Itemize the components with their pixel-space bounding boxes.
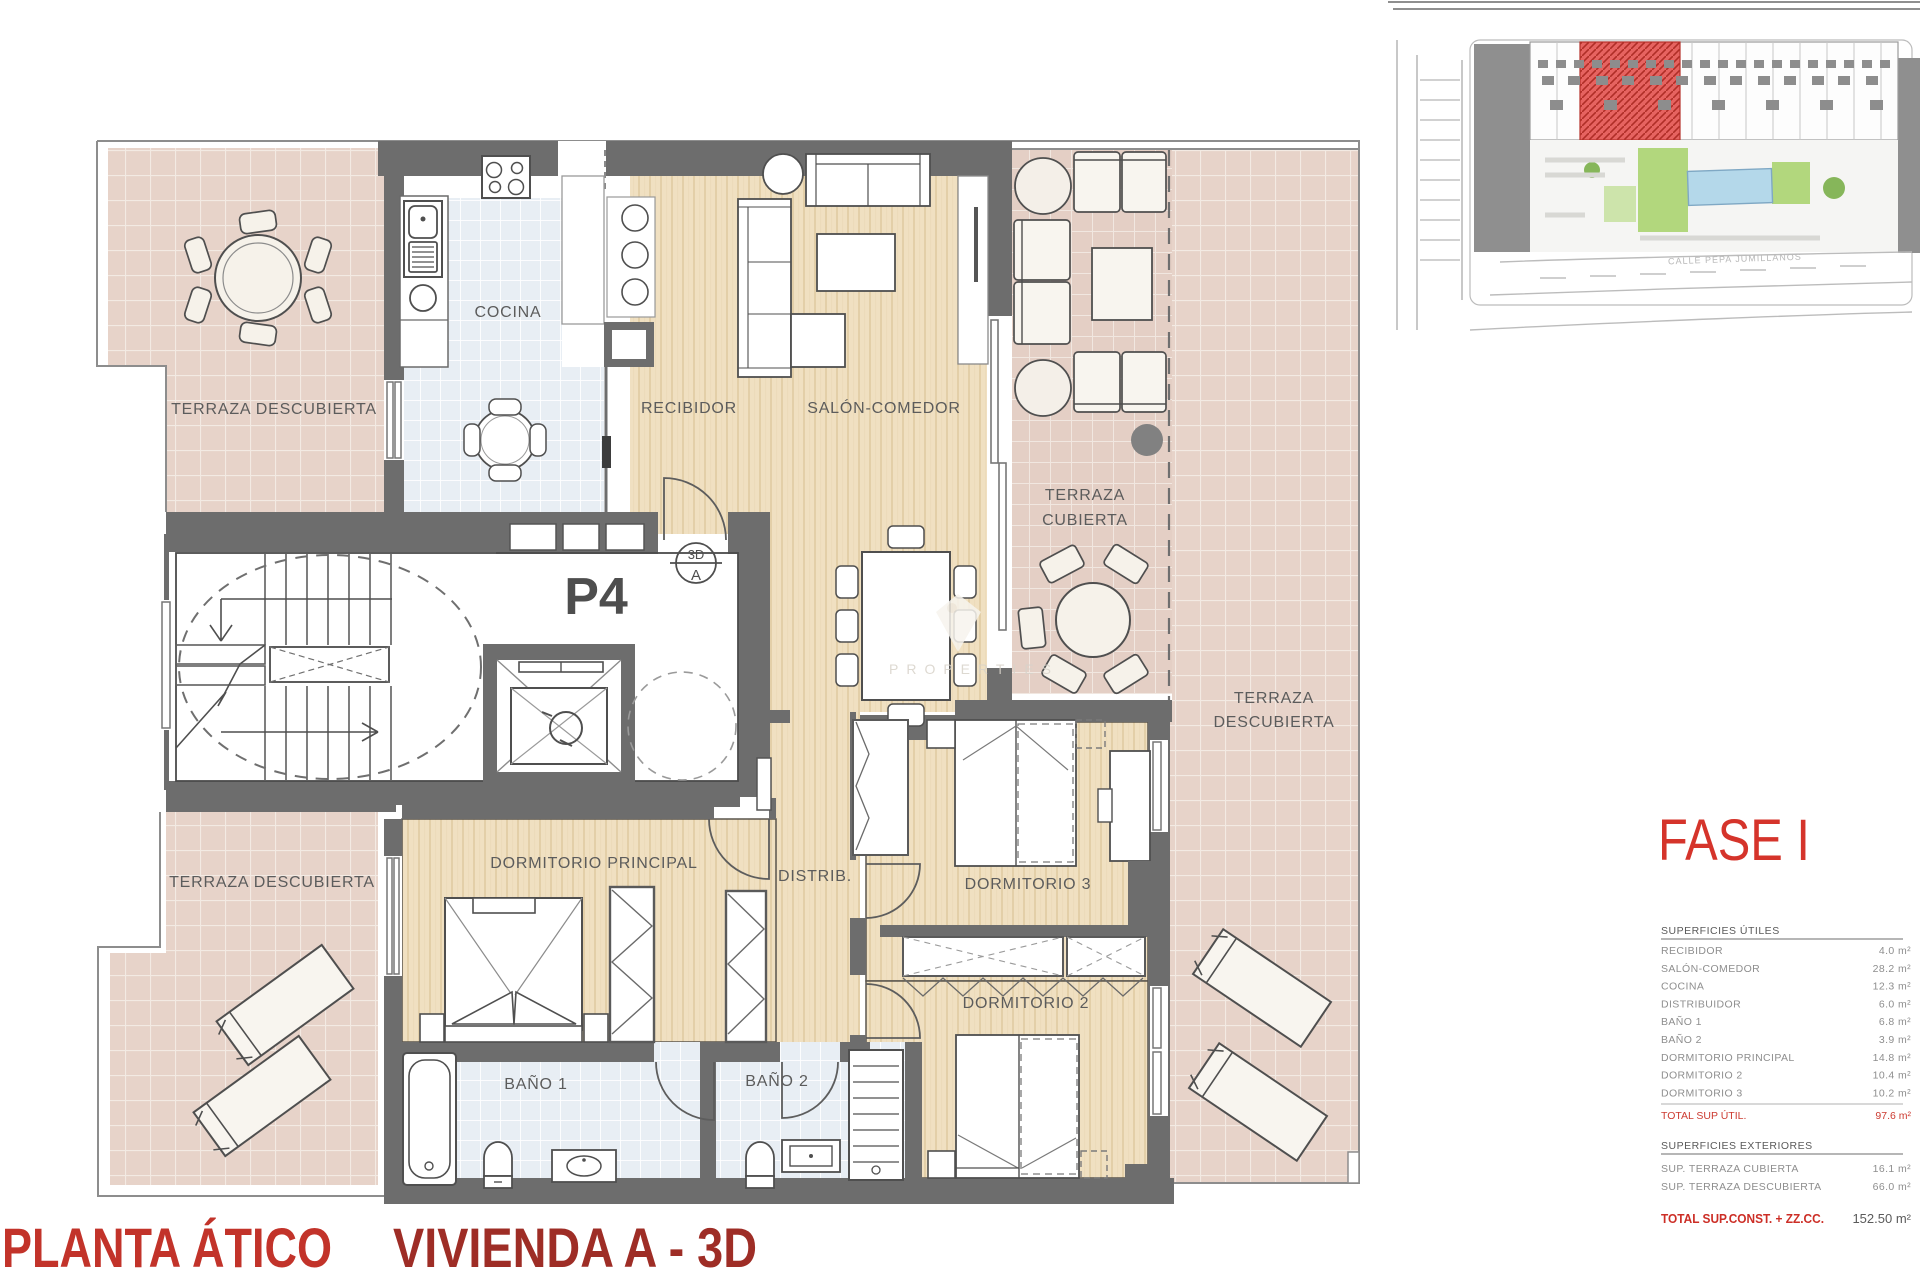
svg-text:COCINA: COCINA <box>1661 981 1704 993</box>
svg-text:3D: 3D <box>688 547 705 562</box>
svg-text:SALÓN-COMEDOR: SALÓN-COMEDOR <box>1661 962 1760 975</box>
svg-text:TOTAL SUP.CONST. + ZZ.CC.: TOTAL SUP.CONST. + ZZ.CC. <box>1661 1211 1824 1226</box>
svg-text:A: A <box>691 567 701 584</box>
svg-text:COCINA: COCINA <box>474 304 541 321</box>
svg-text:SUPERFICIES ÚTILES: SUPERFICIES ÚTILES <box>1661 924 1780 937</box>
svg-text:66.0 m²: 66.0 m² <box>1873 1181 1911 1193</box>
svg-text:RECIBIDOR: RECIBIDOR <box>641 400 737 417</box>
svg-text:BAÑO 2: BAÑO 2 <box>1661 1033 1702 1046</box>
svg-text:28.2 m²: 28.2 m² <box>1873 963 1911 975</box>
svg-text:TERRAZA: TERRAZA <box>1234 690 1314 707</box>
svg-text:TOTAL SUP ÚTIL.: TOTAL SUP ÚTIL. <box>1661 1109 1746 1122</box>
svg-text:DISTRIBUIDOR: DISTRIBUIDOR <box>1661 998 1741 1010</box>
svg-text:DORMITORIO 3: DORMITORIO 3 <box>965 876 1092 893</box>
svg-text:DESCUBIERTA: DESCUBIERTA <box>1213 714 1334 731</box>
svg-text:FASE I: FASE I <box>1658 808 1810 873</box>
svg-text:P4: P4 <box>564 568 628 626</box>
svg-text:16.1 m²: 16.1 m² <box>1873 1163 1911 1175</box>
svg-text:10.4 m²: 10.4 m² <box>1873 1070 1911 1082</box>
svg-text:RECIBIDOR: RECIBIDOR <box>1661 945 1723 957</box>
svg-text:DORMITORIO PRINCIPAL: DORMITORIO PRINCIPAL <box>490 855 697 872</box>
svg-text:VIVIENDA A - 3D: VIVIENDA A - 3D <box>393 1216 757 1279</box>
svg-text:SUP. TERRAZA DESCUBIERTA: SUP. TERRAZA DESCUBIERTA <box>1661 1181 1822 1193</box>
svg-text:SUPERFICIES EXTERIORES: SUPERFICIES EXTERIORES <box>1661 1140 1813 1152</box>
svg-text:CUBIERTA: CUBIERTA <box>1042 512 1128 529</box>
svg-text:SUP. TERRAZA CUBIERTA: SUP. TERRAZA CUBIERTA <box>1661 1163 1799 1175</box>
svg-text:14.8 m²: 14.8 m² <box>1873 1052 1911 1064</box>
svg-text:6.8 m²: 6.8 m² <box>1879 1016 1911 1028</box>
svg-text:DISTRIB.: DISTRIB. <box>778 868 852 885</box>
svg-text:PROPERTIES: PROPERTIES <box>889 661 1059 677</box>
svg-text:BAÑO 1: BAÑO 1 <box>504 1073 568 1093</box>
svg-text:97.6 m²: 97.6 m² <box>1875 1110 1911 1122</box>
svg-text:TERRAZA: TERRAZA <box>1045 487 1125 504</box>
svg-text:BAÑO 1: BAÑO 1 <box>1661 1015 1702 1028</box>
svg-text:PLANTA ÁTICO: PLANTA ÁTICO <box>2 1216 332 1279</box>
svg-text:12.3 m²: 12.3 m² <box>1873 981 1911 993</box>
svg-text:TERRAZA DESCUBIERTA: TERRAZA DESCUBIERTA <box>169 874 375 891</box>
svg-text:10.2 m²: 10.2 m² <box>1873 1087 1911 1099</box>
svg-text:SALÓN-COMEDOR: SALÓN-COMEDOR <box>807 398 961 417</box>
svg-text:TERRAZA DESCUBIERTA: TERRAZA DESCUBIERTA <box>171 401 377 418</box>
svg-text:DORMITORIO PRINCIPAL: DORMITORIO PRINCIPAL <box>1661 1052 1795 1064</box>
svg-text:DORMITORIO 3: DORMITORIO 3 <box>1661 1087 1743 1099</box>
svg-text:DORMITORIO 2: DORMITORIO 2 <box>963 995 1090 1012</box>
svg-text:6.0 m²: 6.0 m² <box>1879 998 1911 1010</box>
svg-text:DORMITORIO 2: DORMITORIO 2 <box>1661 1070 1743 1082</box>
svg-text:BAÑO 2: BAÑO 2 <box>745 1070 809 1090</box>
svg-text:3.9 m²: 3.9 m² <box>1879 1034 1911 1046</box>
svg-text:152.50 m²: 152.50 m² <box>1852 1211 1911 1226</box>
svg-text:4.0 m²: 4.0 m² <box>1879 945 1911 957</box>
